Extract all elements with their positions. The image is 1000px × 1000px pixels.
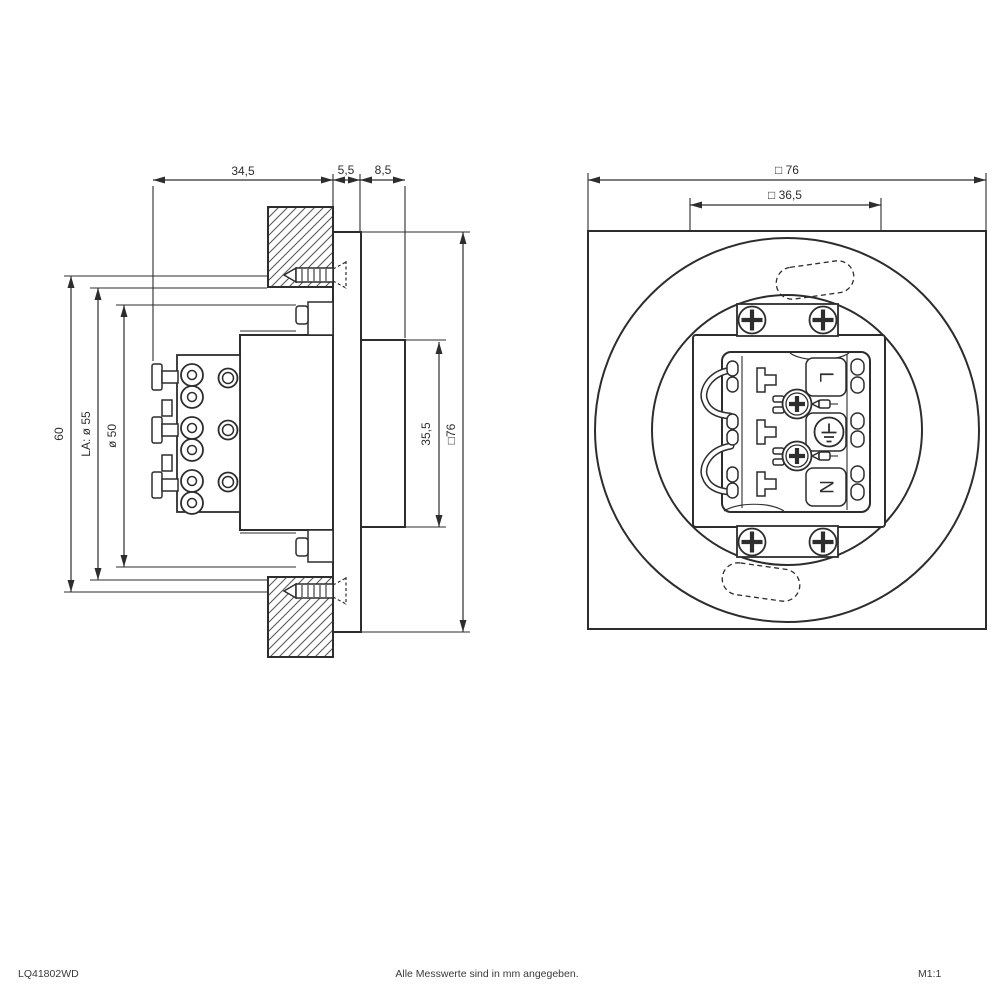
footer: LQ41802WD Alle Messwerte sind in mm ange… [18,968,942,980]
dim-label-bezel-thickness: 5,5 [338,163,355,177]
dim-label-bezel-size: □76 [444,423,458,444]
phillips-screw-icon-bottom-left [739,529,766,556]
housing-body [240,335,333,530]
front-view: L N □ 76 □ 36,5 [588,163,986,629]
dimension-bezel-thickness: 5,5 [333,163,360,180]
drawing-canvas: 34,5 5,5 8,5 60 LA: ø 55 ø 50 35,5 □76 [0,0,1000,1000]
product-code: LQ41802WD [18,968,79,980]
dimension-cutout: LA: ø 55 [79,288,98,580]
earth-ground-icon [815,418,844,447]
dim-label-front-depth: 8,5 [375,163,392,177]
front-block [361,340,405,527]
terminal-block-front: L N [704,352,870,512]
dimension-screw-spacing: 60 [52,276,71,592]
dim-label-screw-spacing: 60 [52,427,66,441]
lever-tab-2 [162,455,172,471]
dimension-front-height: 35,5 [419,342,439,527]
dimension-inner-clearance: ø 50 [105,305,124,567]
dim-label-mounting-plate: □ 36,5 [768,188,802,202]
dimension-mounting-plate: □ 36,5 [690,188,881,205]
dim-label-recess-depth: 34,5 [231,164,255,178]
wire-lever-bottom [152,472,178,498]
dimension-recess-depth: 34,5 [153,164,333,180]
measurement-note: Alle Messwerte sind in mm angegeben. [395,968,578,980]
phillips-screw-icon-top-left [739,307,766,334]
terminal-block-side [152,355,240,514]
phillips-screw-icon-top-right [810,307,837,334]
dim-label-cutout: LA: ø 55 [79,411,93,457]
phillips-screw-icon-bottom-right [810,529,837,556]
clamp-bracket-top [296,302,333,335]
clamp-bracket-bottom [296,530,333,562]
wire-lever-top [152,364,178,390]
technical-drawing-page: 34,5 5,5 8,5 60 LA: ø 55 ø 50 35,5 □76 [0,0,1000,1000]
dim-label-front-height: 35,5 [419,422,433,446]
terminal-screw-icon-lower [783,442,812,471]
terminal-label-live: L [815,372,836,383]
wire-lever-middle [152,417,178,443]
dimension-front-depth: 8,5 [360,163,405,180]
dim-label-faceplate: □ 76 [775,163,799,177]
dimension-bezel-size: □76 [444,232,463,632]
dim-label-inner-clearance: ø 50 [105,424,119,448]
bezel-plate [333,232,361,632]
dimension-faceplate: □ 76 [588,163,986,180]
terminal-screw-icon-upper [783,390,812,419]
side-view: 34,5 5,5 8,5 60 LA: ø 55 ø 50 35,5 □76 [52,163,470,657]
terminal-label-neutral: N [815,480,836,494]
lever-tab-1 [162,400,172,416]
scale-label: M1:1 [918,968,942,980]
